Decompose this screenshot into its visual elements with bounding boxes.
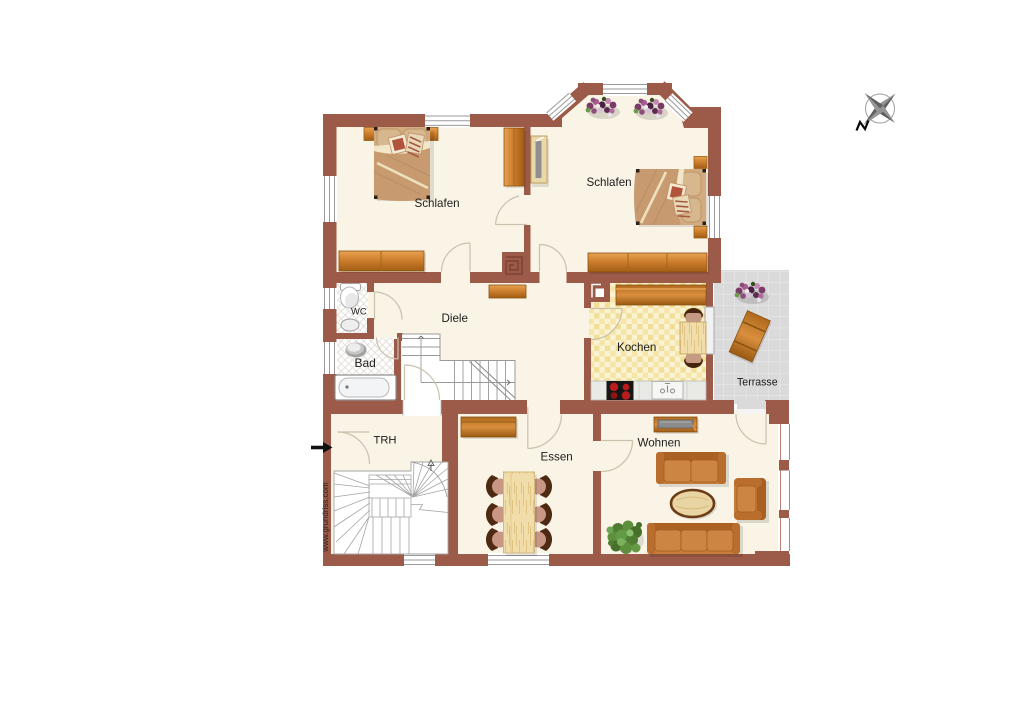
svg-text:WC: WC — [351, 306, 367, 317]
svg-text:Schlafen: Schlafen — [587, 176, 632, 189]
svg-text:Schlafen: Schlafen — [415, 197, 460, 210]
svg-text:Essen: Essen — [541, 451, 573, 464]
svg-text:Terrasse: Terrasse — [737, 377, 778, 389]
svg-text:Bad: Bad — [355, 356, 376, 370]
svg-text:TRH: TRH — [374, 435, 397, 447]
svg-text:Kochen: Kochen — [617, 341, 656, 354]
svg-text:Wohnen: Wohnen — [638, 437, 681, 450]
svg-text:Diele: Diele — [442, 312, 468, 325]
svg-text:www.grundriss.com: www.grundriss.com — [321, 482, 330, 553]
